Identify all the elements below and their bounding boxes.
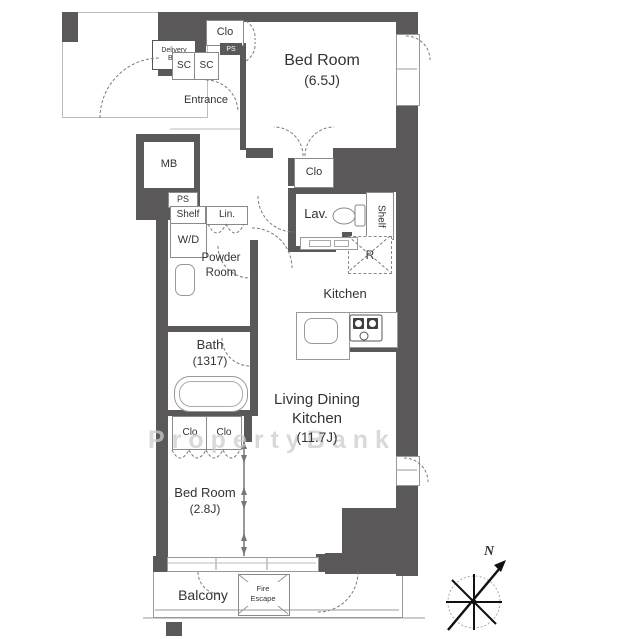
door-arc [100,58,160,118]
floor-plan: Clo Delivery Box PS SC SC MB PS Shelf Li… [0,0,640,639]
room-name: Kitchen [292,409,342,429]
fire-escape-text: Escape [250,594,275,604]
room-label-powder: Powder Room [192,250,250,282]
room-label-ldk: Living Dining Kitchen (11.7J) [244,388,390,448]
room-label-kitchen: Kitchen [310,286,380,302]
room-size: (11.7J) [296,429,337,447]
room-size: (6.5J) [304,71,340,89]
room-label-entrance: Entrance [172,92,240,108]
partition-arrow [241,533,247,541]
door-arc [252,228,292,268]
folding-door-arc [208,224,244,233]
stove-icon [350,315,382,341]
door-arc [246,21,255,40]
room-name: Powder [202,251,241,266]
compass-rose [446,560,506,630]
room-label-bedroom-bottom: Bed Room (2.8J) [162,482,248,520]
door-arc [305,127,334,156]
room-size: (1317) [193,354,228,370]
door-arc [318,572,358,612]
room-name: Bed Room [174,485,235,502]
compass-north-label: N [484,544,502,560]
refrigerator-cross [348,236,390,272]
fire-escape-label: Fire Escape [245,582,281,606]
room-name: Bath [197,337,224,354]
door-arc [274,127,303,156]
door-arc [258,196,294,232]
room-name: Living Dining [274,390,360,410]
room-name: Bed Room [284,51,360,72]
door-arc [406,36,430,60]
room-label-bath: Bath (1317) [178,336,242,370]
fire-escape-text: Fire [257,584,270,594]
room-size: (2.8J) [190,502,221,518]
room-label-lavatory: Lav. [296,206,336,222]
compass-north-arrow [494,560,506,572]
partition-arrow [241,547,247,555]
room-label-balcony: Balcony [168,586,238,604]
room-label-bedroom-top: Bed Room (6.5J) [248,44,396,96]
toilet-icon [333,205,365,226]
room-name: Room [206,266,237,281]
